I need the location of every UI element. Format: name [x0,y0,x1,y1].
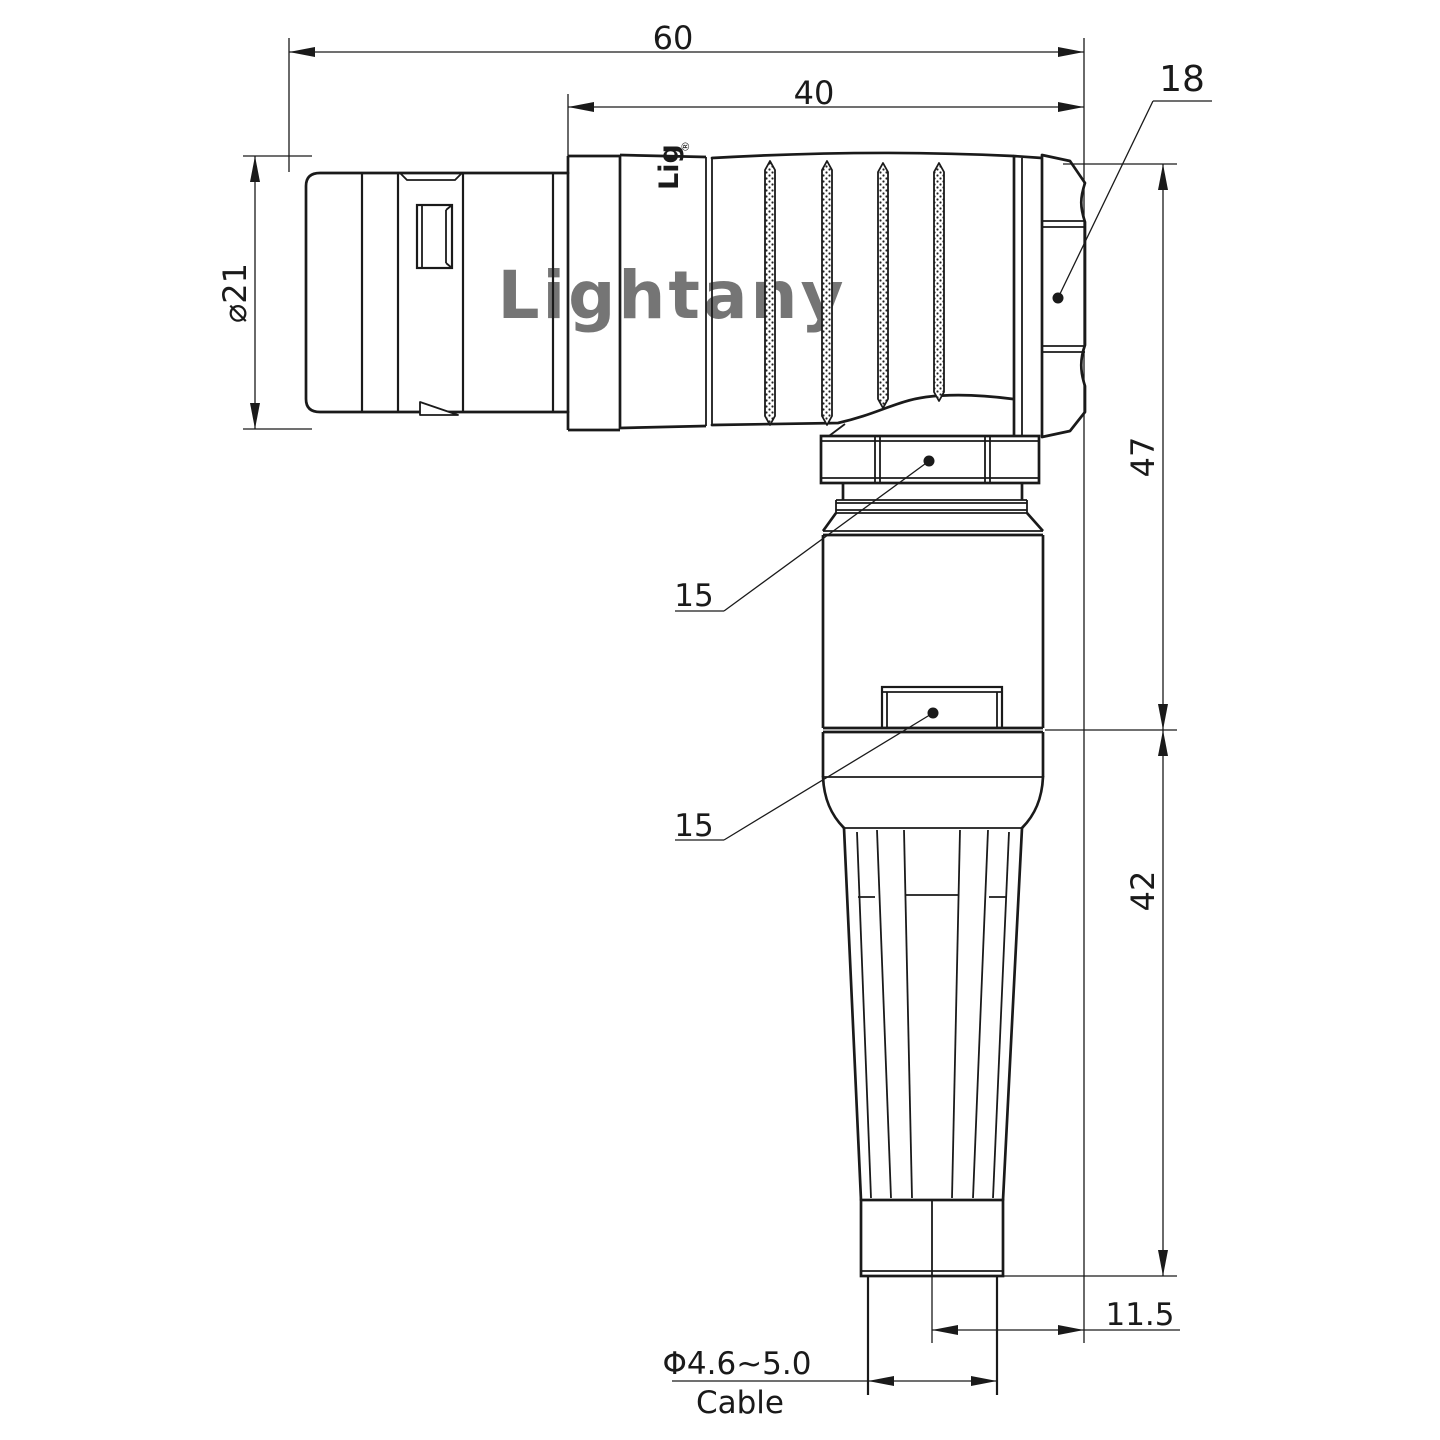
knurl-strip [878,163,888,408]
knurl-strip [822,161,832,425]
drawing-canvas: Lightany Lightany604018⌀214742151511.5Φ4… [0,0,1440,1440]
dim-40-label: 40 [794,74,835,112]
brand-reg-mark: ® [679,141,692,152]
dim-47-label: 47 [1124,437,1162,478]
dim-18-label: 18 [1159,59,1205,100]
dim-15b-label: 15 [674,808,713,844]
watermark-text: Lightany [497,257,846,334]
dim-42-label: 42 [1124,871,1162,912]
knurl-strip [934,163,944,401]
dim-dia21-label: ⌀21 [216,263,254,323]
dim-115-label: 11.5 [1105,1297,1174,1333]
leader-dot-18 [1053,293,1064,304]
dim-60-label: 60 [653,19,694,57]
knurl-strip [765,161,775,425]
cable-label: Cable [696,1385,784,1421]
drawing-background [0,0,1440,1440]
leader-dot-15a [924,456,935,467]
technical-drawing-svg: Lightany Lightany604018⌀214742151511.5Φ4… [0,0,1440,1440]
leader-dot-15b [928,708,939,719]
dim-cable-dia-label: Φ4.6~5.0 [663,1346,812,1382]
dim-15a-label: 15 [674,578,713,614]
